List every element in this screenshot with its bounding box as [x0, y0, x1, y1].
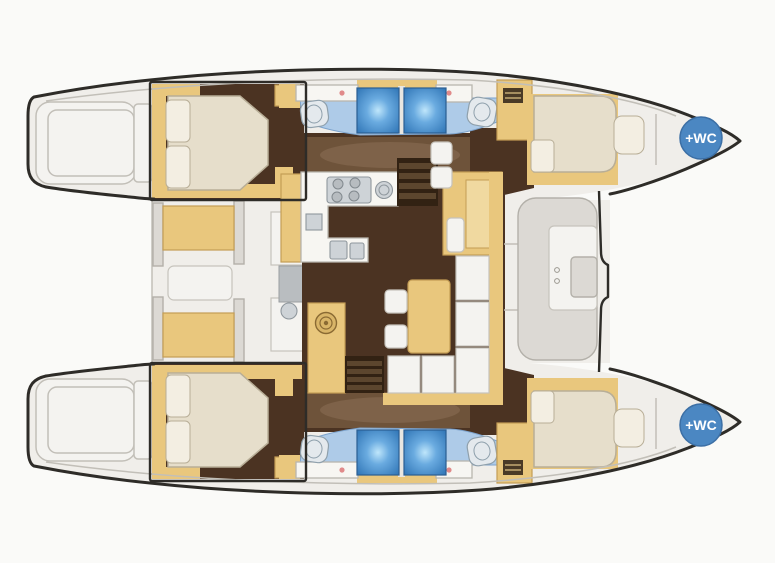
lower-bench-back-right	[234, 299, 244, 362]
foredeck	[504, 191, 608, 372]
catamaran-floor-plan: +WC +WC	[0, 0, 775, 563]
stairs-lower-hull	[345, 356, 384, 393]
louver-vent	[503, 88, 523, 103]
toilet	[466, 96, 498, 128]
toilet	[299, 434, 329, 464]
double-sink-right	[350, 243, 364, 259]
pillow	[614, 116, 644, 154]
upper-bench-back-right	[234, 201, 244, 264]
lower-wc-badge-label: +WC	[685, 417, 717, 433]
floor-plan-page: +WC +WC	[0, 0, 775, 563]
companionway-cabinet	[308, 303, 345, 393]
pillow	[166, 375, 190, 417]
faucet	[446, 90, 451, 95]
upper-cockpit-bench	[163, 206, 234, 250]
double-sink-left	[330, 241, 347, 259]
round-sink	[376, 182, 393, 199]
shower-stall	[404, 88, 446, 133]
upper-bench-back-left	[153, 203, 163, 266]
galley-hatch	[306, 214, 322, 230]
seat-cushion	[531, 391, 554, 423]
salon-table	[408, 280, 450, 353]
upper-wc-badge-label: +WC	[685, 130, 717, 146]
sofa-cushion	[422, 356, 454, 393]
nav-bench-cushion	[447, 218, 464, 252]
sofa-cushion	[456, 302, 489, 346]
sofa-cushion	[388, 356, 420, 393]
toilet	[299, 99, 329, 129]
sofa-cushion	[456, 256, 489, 300]
nav-seat	[431, 142, 452, 164]
seat-cushion	[531, 140, 554, 172]
shower-stall	[357, 88, 399, 133]
galley-outboard-cabinet	[281, 174, 301, 262]
forward-seat-tab	[571, 257, 597, 297]
toilet	[466, 435, 498, 467]
shower-stall	[357, 430, 399, 475]
lower-wetbar-sink	[281, 303, 297, 319]
pillow	[614, 409, 644, 447]
louver-vent	[503, 460, 523, 475]
shower-stall	[404, 430, 446, 475]
stool	[385, 290, 407, 313]
stern-platforms	[36, 102, 152, 461]
stool	[385, 325, 407, 348]
sofa-back-band	[489, 172, 503, 404]
burner	[350, 178, 360, 188]
lower-cockpit-bench	[163, 313, 234, 357]
sofa-cushion	[456, 348, 489, 393]
lower-bench-back-left	[153, 297, 163, 360]
upper-transom-platform	[36, 102, 136, 184]
lower-transom-platform	[36, 379, 136, 461]
nav-seat	[431, 167, 452, 188]
sofa-base-band	[383, 393, 503, 405]
faucet	[339, 467, 344, 472]
pillow	[166, 100, 190, 142]
burner	[349, 191, 359, 201]
cockpit-table	[168, 266, 232, 300]
trim	[275, 373, 293, 396]
faucet	[339, 90, 344, 95]
burner	[332, 192, 342, 202]
trim	[152, 86, 166, 198]
burner	[333, 179, 343, 189]
faucet	[446, 467, 451, 472]
pillow	[166, 421, 190, 463]
trim	[152, 365, 166, 477]
pillow	[166, 146, 190, 188]
